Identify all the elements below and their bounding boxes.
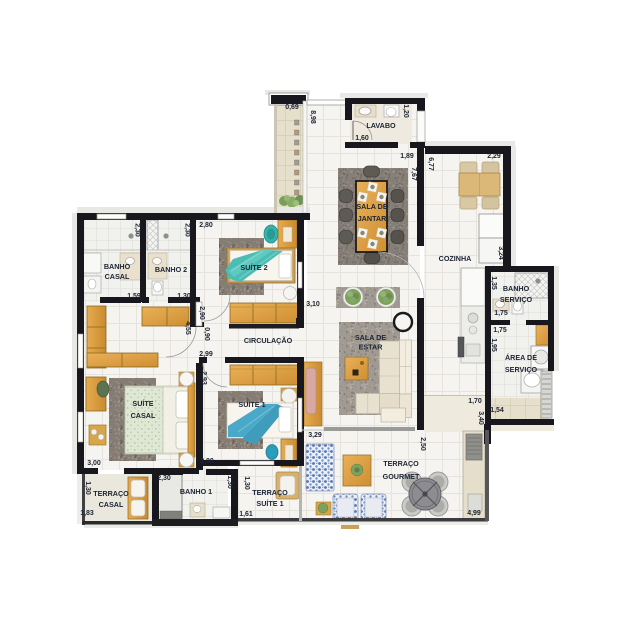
svg-text:0,69: 0,69 (285, 104, 299, 111)
svg-text:JANTAR: JANTAR (358, 214, 387, 223)
svg-text:BANHO: BANHO (104, 262, 131, 271)
svg-text:1,30: 1,30 (177, 293, 191, 300)
svg-text:SALA DE: SALA DE (356, 202, 387, 211)
svg-text:LAVABO: LAVABO (366, 121, 396, 130)
svg-text:2,30: 2,30 (134, 223, 141, 237)
svg-text:BANHO 1: BANHO 1 (180, 487, 212, 496)
svg-text:3,24: 3,24 (497, 246, 504, 260)
svg-text:ESTAR: ESTAR (359, 343, 384, 352)
svg-text:1,30: 1,30 (243, 476, 250, 490)
svg-text:2,80: 2,80 (200, 458, 214, 465)
svg-text:2,80: 2,80 (199, 222, 213, 229)
svg-text:1,89: 1,89 (400, 153, 414, 160)
svg-text:7,67: 7,67 (410, 167, 417, 181)
svg-text:3,40: 3,40 (477, 411, 484, 425)
svg-text:SUÍTE 2: SUÍTE 2 (240, 263, 267, 272)
svg-text:1,30: 1,30 (226, 475, 233, 489)
svg-text:CASAL: CASAL (105, 272, 130, 281)
svg-text:SERVIÇO: SERVIÇO (505, 365, 538, 374)
svg-text:CASAL: CASAL (99, 500, 124, 509)
svg-text:2,90: 2,90 (198, 306, 205, 320)
svg-text:1,61: 1,61 (239, 511, 253, 518)
svg-text:1,35: 1,35 (490, 276, 497, 290)
svg-text:1,54: 1,54 (490, 407, 504, 414)
svg-text:1,83: 1,83 (80, 510, 94, 517)
svg-text:1,75: 1,75 (493, 327, 507, 334)
svg-text:TERRAÇO: TERRAÇO (252, 488, 288, 497)
svg-text:3,00: 3,00 (87, 460, 101, 467)
svg-text:SUÍTE: SUÍTE (132, 399, 153, 408)
svg-text:TERRAÇO: TERRAÇO (93, 489, 129, 498)
svg-text:BANHO: BANHO (503, 284, 530, 293)
svg-text:CIRCULAÇÃO: CIRCULAÇÃO (244, 336, 293, 345)
svg-text:1,20: 1,20 (402, 104, 409, 118)
svg-text:1,59: 1,59 (127, 293, 141, 300)
svg-text:1,30: 1,30 (84, 481, 91, 495)
svg-text:BANHO 2: BANHO 2 (155, 265, 187, 274)
svg-text:1,70: 1,70 (468, 398, 482, 405)
svg-text:2,30: 2,30 (157, 475, 171, 482)
svg-text:2,30: 2,30 (184, 223, 191, 237)
svg-text:2,50: 2,50 (419, 437, 426, 451)
svg-text:4,55: 4,55 (184, 321, 191, 335)
svg-text:SERVIÇO: SERVIÇO (500, 295, 533, 304)
svg-text:2,99: 2,99 (199, 351, 213, 358)
svg-text:8,98: 8,98 (309, 110, 316, 124)
svg-text:2,93: 2,93 (200, 371, 207, 385)
svg-text:SUÍTE 1: SUÍTE 1 (256, 499, 283, 508)
svg-text:SALA DE: SALA DE (355, 333, 386, 342)
svg-text:3,29: 3,29 (308, 432, 322, 439)
svg-text:ÁREA DE: ÁREA DE (505, 353, 537, 362)
svg-text:4,99: 4,99 (467, 510, 481, 517)
svg-text:COZINHA: COZINHA (439, 254, 472, 263)
svg-text:6,77: 6,77 (427, 157, 434, 171)
svg-text:1,95: 1,95 (490, 338, 497, 352)
svg-text:1,75: 1,75 (494, 310, 508, 317)
svg-text:0,90: 0,90 (203, 327, 210, 341)
svg-text:GOURMET: GOURMET (383, 472, 420, 481)
svg-text:2,29: 2,29 (487, 153, 501, 160)
svg-text:SUÍTE 1: SUÍTE 1 (238, 400, 265, 409)
svg-text:3,10: 3,10 (306, 301, 320, 308)
svg-text:CASAL: CASAL (131, 411, 156, 420)
svg-text:TERRAÇO: TERRAÇO (383, 459, 419, 468)
svg-text:1,60: 1,60 (355, 135, 369, 142)
